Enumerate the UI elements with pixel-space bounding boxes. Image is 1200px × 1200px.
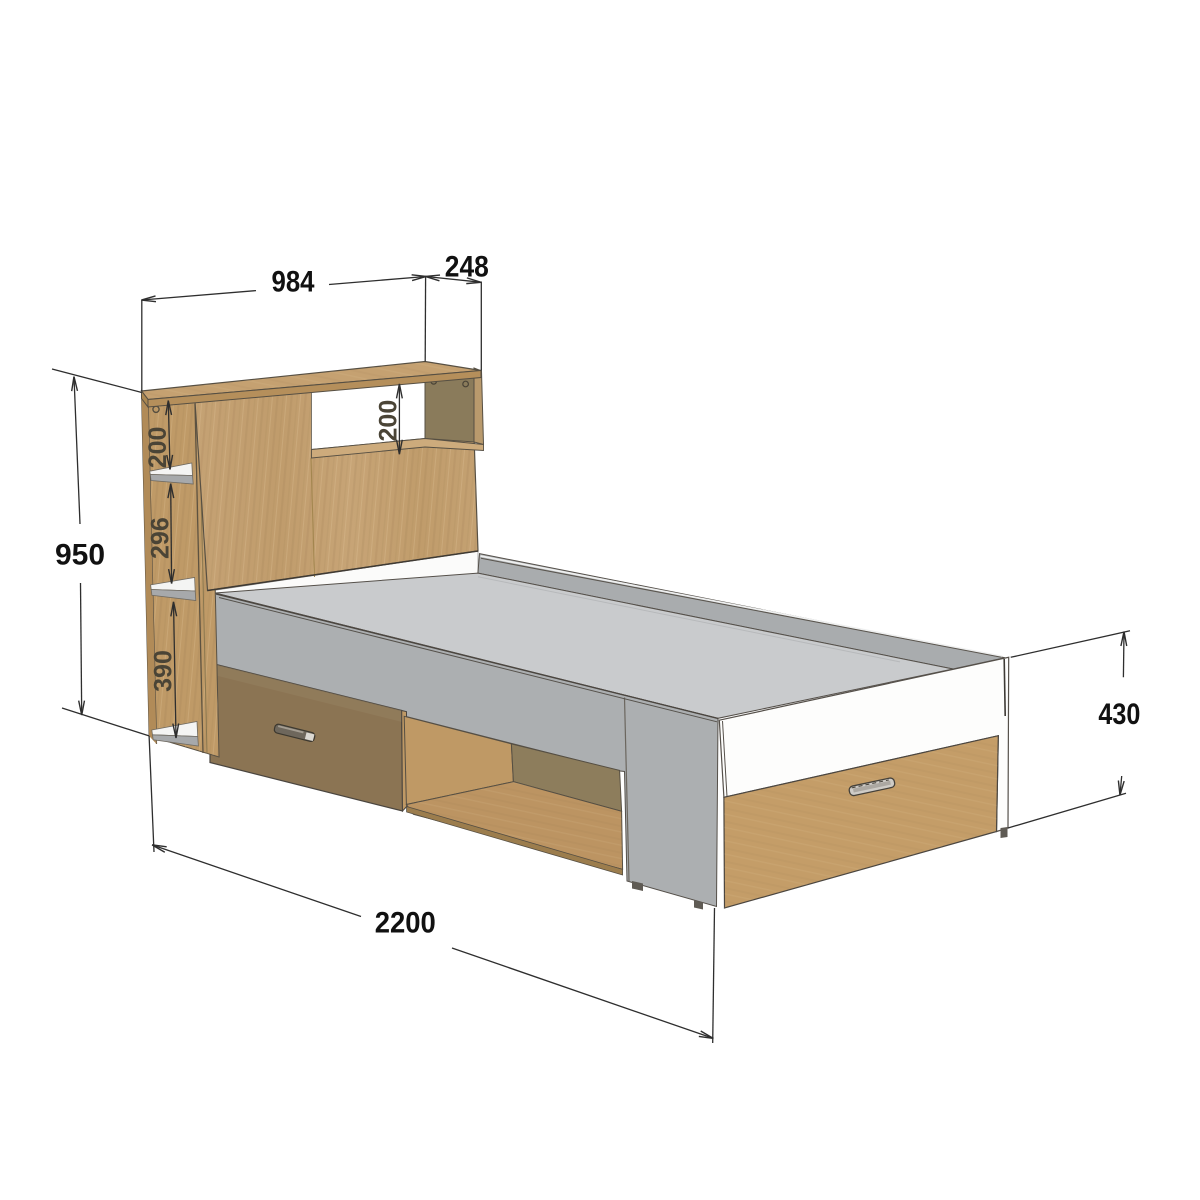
svg-text:296: 296 [147,517,175,559]
svg-text:200: 200 [144,427,172,469]
svg-text:248: 248 [445,250,489,283]
svg-text:2200: 2200 [375,907,436,940]
svg-text:430: 430 [1098,698,1140,731]
svg-text:200: 200 [375,400,403,442]
svg-text:950: 950 [55,538,105,571]
svg-text:390: 390 [150,650,178,692]
svg-text:984: 984 [272,266,315,299]
